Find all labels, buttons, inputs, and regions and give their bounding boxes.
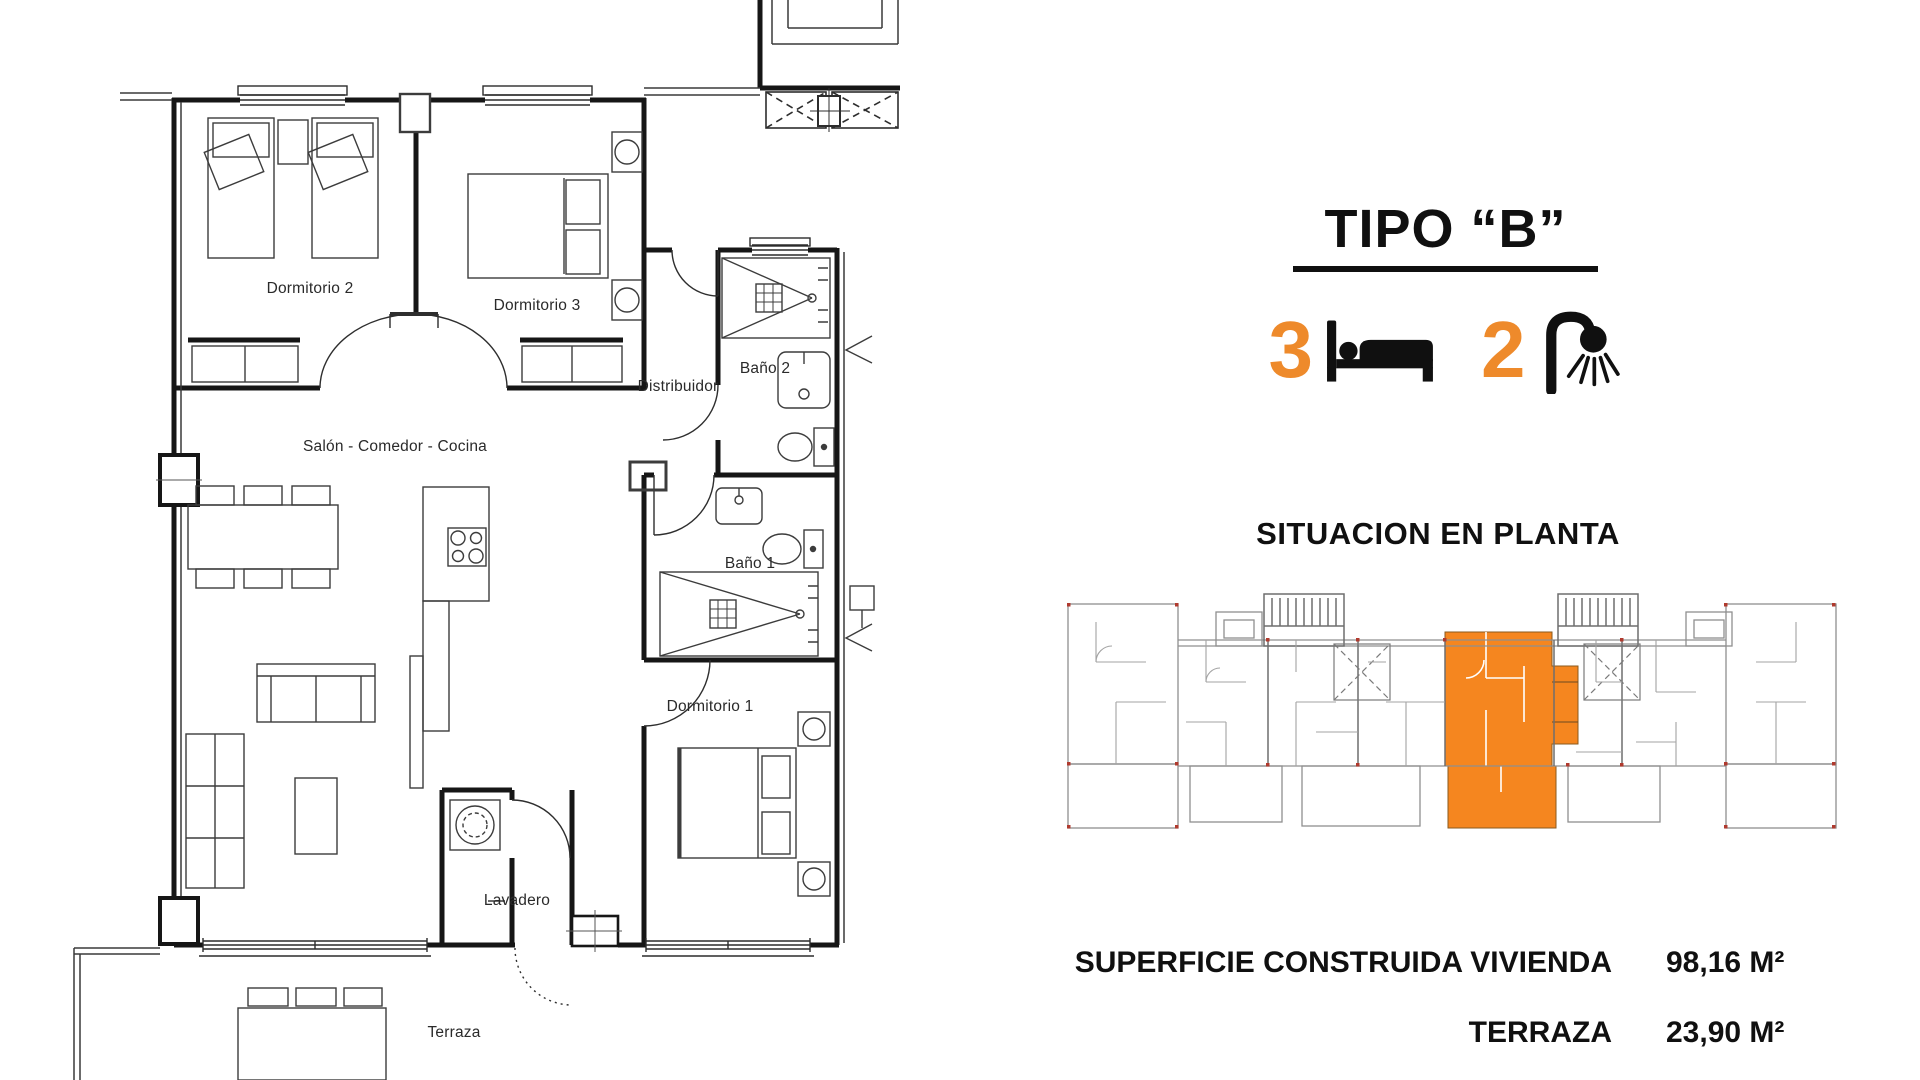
stat-label-terraza: TERRAZA: [1048, 1016, 1612, 1050]
room-label-bano-1: Baño 1: [725, 555, 775, 573]
bathrooms-count: 2: [1481, 310, 1526, 390]
floor-plan-drawing: [60, 0, 905, 1080]
room-label-dormitorio-3: Dormitorio 3: [494, 297, 581, 315]
bedrooms-count: 3: [1269, 310, 1314, 390]
site-plan-drawing: [1056, 582, 1848, 844]
room-label-dormitorio-2: Dormitorio 2: [267, 280, 354, 298]
stat-row-superficie: SUPERFICIE CONSTRUIDA VIVIENDA 98,16 M²: [1048, 946, 1838, 980]
shower-icon: [1540, 306, 1622, 394]
stat-label-superficie: SUPERFICIE CONSTRUIDA VIVIENDA: [1048, 946, 1612, 980]
stat-value-superficie: 98,16 M²: [1666, 946, 1838, 980]
room-label-lavadero: Lavadero: [484, 892, 550, 910]
unit-features-row: 3 2: [1240, 298, 1650, 402]
room-label-distribuidor: Distribuidor: [638, 378, 719, 396]
unit-type-title: TIPO “B”: [1293, 198, 1598, 272]
room-label-dormitorio-1: Dormitorio 1: [667, 698, 754, 716]
bed-icon: [1325, 312, 1437, 388]
stat-value-terraza: 23,90 M²: [1666, 1016, 1838, 1050]
room-label-salon: Salón - Comedor - Cocina: [303, 438, 487, 456]
situation-heading: SITUACION EN PLANTA: [1233, 516, 1643, 552]
room-label-terraza: Terraza: [427, 1024, 480, 1042]
stat-row-terraza: TERRAZA 23,90 M²: [1048, 1016, 1838, 1050]
floor-plan-page: Dormitorio 2 Dormitorio 3 Baño 2 Distrib…: [0, 0, 1920, 1080]
room-label-bano-2: Baño 2: [740, 360, 790, 378]
